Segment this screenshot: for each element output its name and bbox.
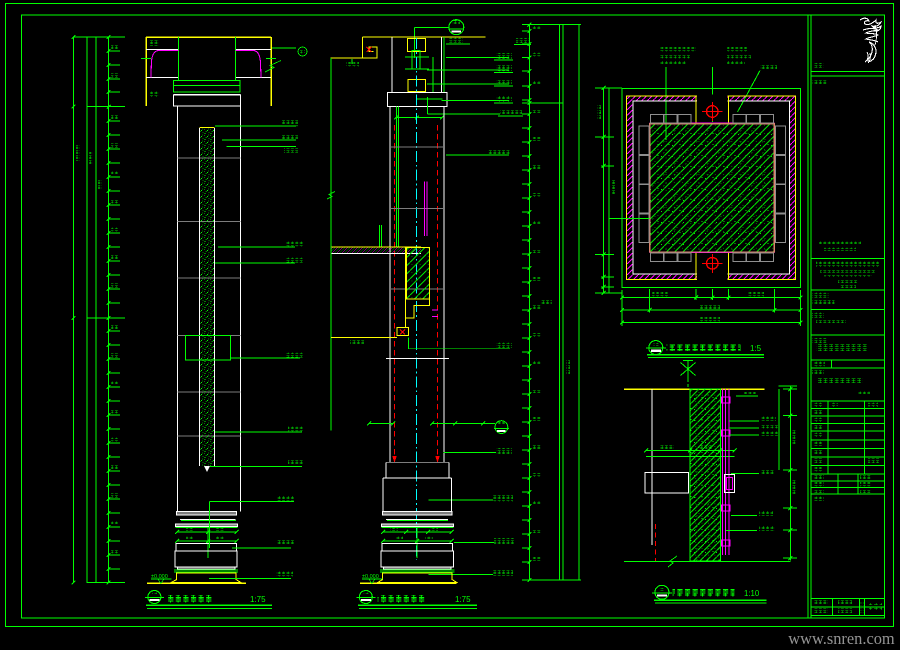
svg-text:1:75: 1:75	[250, 595, 266, 604]
svg-text:1:5: 1:5	[750, 344, 762, 353]
svg-text:1:75: 1:75	[455, 595, 471, 604]
svg-text:www.snren.com: www.snren.com	[788, 629, 895, 648]
svg-text:1:10: 1:10	[744, 589, 760, 598]
